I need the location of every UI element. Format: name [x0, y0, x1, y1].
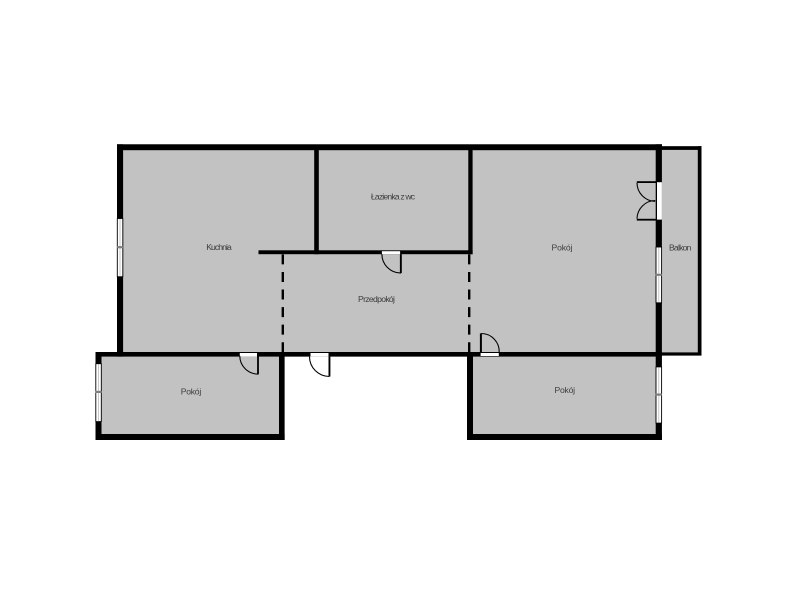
- svg-text:Łazienka z wc: Łazienka z wc: [371, 191, 416, 201]
- svg-text:Przedpokój: Przedpokój: [358, 294, 395, 304]
- svg-text:Kuchnia: Kuchnia: [206, 242, 232, 252]
- svg-text:Balkon: Balkon: [669, 242, 692, 252]
- svg-text:Pokój: Pokój: [181, 386, 202, 396]
- svg-text:Pokój: Pokój: [555, 385, 576, 395]
- svg-text:Pokój: Pokój: [552, 242, 573, 252]
